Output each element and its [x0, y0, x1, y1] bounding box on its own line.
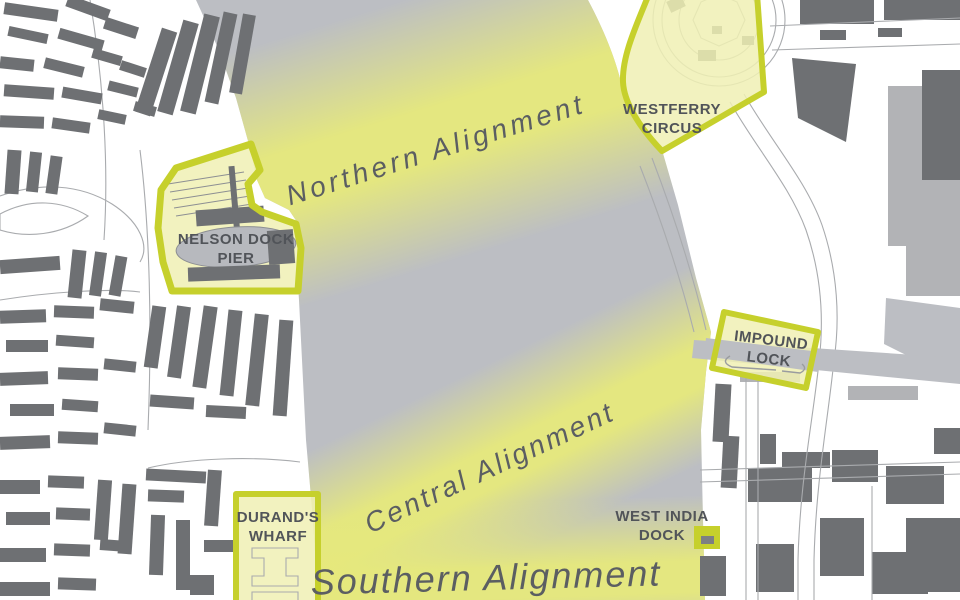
- building: [97, 109, 126, 125]
- building: [144, 305, 166, 368]
- building: [48, 475, 84, 488]
- building: [6, 340, 48, 352]
- building: [0, 371, 48, 386]
- building: [204, 540, 234, 552]
- building: [150, 394, 195, 409]
- building: [89, 251, 107, 296]
- building: [4, 150, 21, 195]
- building: [206, 405, 247, 419]
- map-canvas: Northern Alignment Central Alignment Sou…: [0, 0, 960, 600]
- label-line: PIER: [178, 249, 294, 268]
- building: [760, 434, 776, 464]
- building: [103, 17, 139, 39]
- label-durands-wharf: DURAND'S WHARF: [237, 508, 320, 546]
- building: [0, 56, 35, 71]
- building: [4, 84, 55, 99]
- building: [104, 422, 137, 436]
- building: [3, 2, 58, 21]
- building: [245, 314, 269, 407]
- building: [886, 466, 944, 504]
- building: [878, 28, 902, 37]
- building: [45, 155, 62, 194]
- building: [149, 515, 165, 575]
- building: [192, 305, 217, 388]
- label-line: WESTFERRY: [623, 100, 721, 119]
- building: [94, 480, 112, 541]
- building: [43, 57, 84, 77]
- building: [91, 48, 123, 66]
- building: [922, 70, 960, 180]
- building: [204, 470, 222, 527]
- building: [0, 548, 46, 562]
- building: [62, 399, 99, 412]
- building: [65, 0, 110, 21]
- building: [54, 543, 90, 556]
- building: [906, 518, 960, 592]
- building: [58, 577, 96, 590]
- building: [190, 575, 214, 595]
- building: [56, 507, 90, 520]
- building: [57, 28, 104, 51]
- building: [934, 428, 960, 454]
- building: [906, 200, 960, 296]
- building: [167, 305, 191, 378]
- building: [61, 87, 102, 105]
- building: [0, 115, 44, 129]
- building: [273, 320, 294, 417]
- building: [6, 512, 50, 525]
- building: [884, 0, 960, 20]
- building: [10, 404, 54, 416]
- building: [58, 431, 98, 444]
- building: [104, 358, 137, 372]
- label-line: NELSON DOCK: [178, 230, 294, 249]
- building: [756, 544, 794, 592]
- building-triangle: [792, 58, 856, 142]
- building: [0, 480, 40, 494]
- label-line: WHARF: [237, 527, 320, 546]
- label-southern-alignment: Southern Alignment: [310, 552, 662, 600]
- label-line: CIRCUS: [623, 119, 721, 138]
- building: [820, 518, 864, 576]
- label-line: DOCK: [615, 526, 708, 545]
- building: [148, 489, 184, 502]
- building: [176, 520, 190, 590]
- building: [56, 335, 95, 349]
- building: [119, 60, 147, 78]
- building: [107, 81, 139, 98]
- building: [712, 384, 731, 443]
- label-line: DURAND'S: [237, 508, 320, 527]
- building: [0, 582, 50, 596]
- building: [54, 305, 94, 318]
- building: [51, 117, 90, 133]
- building: [118, 484, 137, 555]
- building: [0, 435, 50, 450]
- building: [0, 309, 46, 324]
- building: [146, 468, 207, 483]
- building: [220, 310, 243, 397]
- building: [700, 556, 726, 596]
- building: [0, 256, 60, 274]
- building: [7, 26, 48, 44]
- building: [58, 367, 98, 380]
- building: [26, 151, 42, 192]
- building: [99, 298, 134, 313]
- building: [800, 0, 874, 24]
- label-westferry-circus: WESTFERRY CIRCUS: [623, 100, 721, 138]
- label-west-india-dock: WEST INDIA DOCK: [615, 507, 708, 545]
- label-line: WEST INDIA: [615, 507, 708, 526]
- building: [848, 386, 918, 400]
- building: [820, 30, 846, 40]
- label-nelson-dock-pier: NELSON DOCK PIER: [178, 230, 294, 268]
- base-map: [0, 0, 960, 600]
